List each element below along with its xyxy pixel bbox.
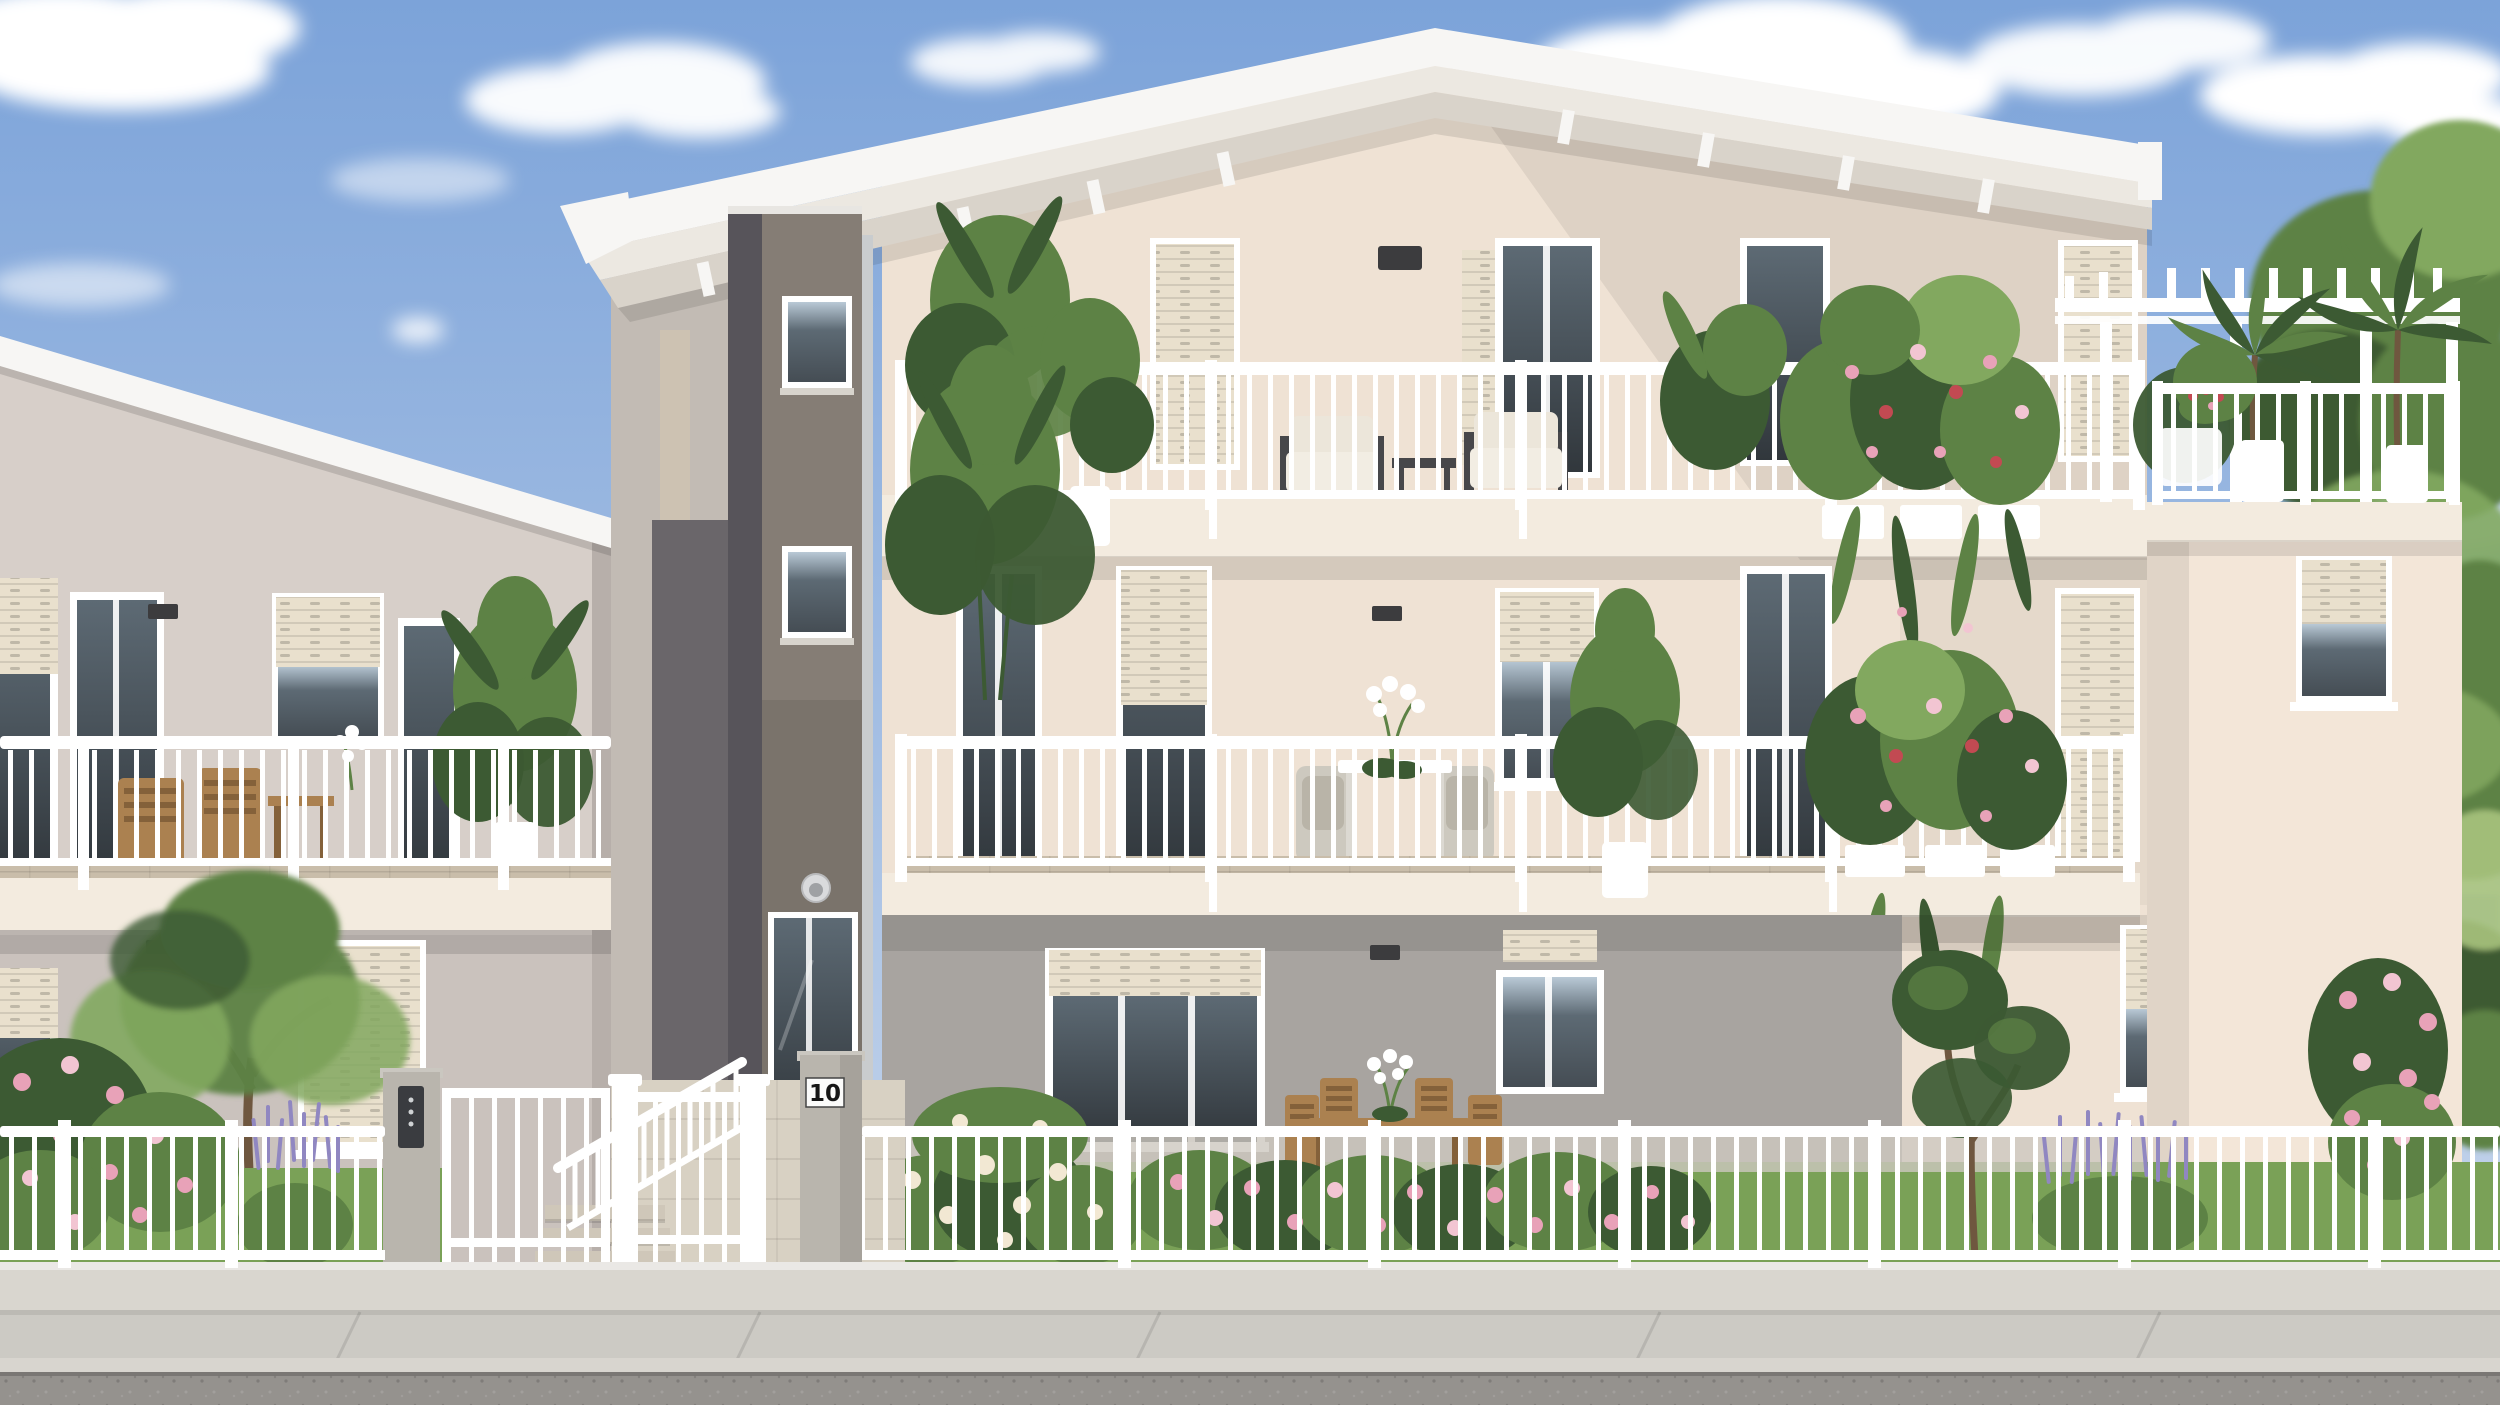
- road: [0, 1372, 2500, 1405]
- cloud: [392, 317, 444, 343]
- wing-slab: [2147, 502, 2462, 542]
- render-canvas: 10: [0, 0, 2500, 1405]
- wall-lamp-icon: [148, 604, 178, 619]
- balcony-slab: [882, 873, 2140, 917]
- perimeter-fence: [0, 1120, 2500, 1314]
- wall-lamp-icon: [1372, 606, 1402, 621]
- left-upper-window-shutter: [268, 593, 388, 749]
- cloud: [330, 158, 510, 202]
- fence-left-section: [0, 1120, 385, 1268]
- house-number-sign: 10: [806, 1078, 844, 1107]
- gable-vent-icon: [1378, 246, 1422, 270]
- fence-right-section: [862, 1120, 2500, 1268]
- eave-end-cap: [2138, 142, 2162, 200]
- intercom-panel[interactable]: [398, 1086, 424, 1148]
- wall-lamp-icon: [1370, 945, 1400, 960]
- architectural-rendering: 10: [0, 0, 2500, 1405]
- wing-window: [2290, 556, 2398, 711]
- stair-tower: [728, 206, 873, 1134]
- curb: [0, 1358, 2500, 1372]
- house-number-text: 10: [809, 1081, 841, 1107]
- vent-grille-icon: [1503, 930, 1597, 962]
- street: [0, 1310, 2500, 1405]
- stairwell-window: [780, 296, 854, 395]
- plant-pot: [1602, 842, 1648, 898]
- downspout-pipe: [862, 235, 873, 1115]
- stairwell-window: [780, 546, 854, 645]
- tower-side-face: [728, 214, 766, 1134]
- ground-window-small: [1496, 930, 1604, 1094]
